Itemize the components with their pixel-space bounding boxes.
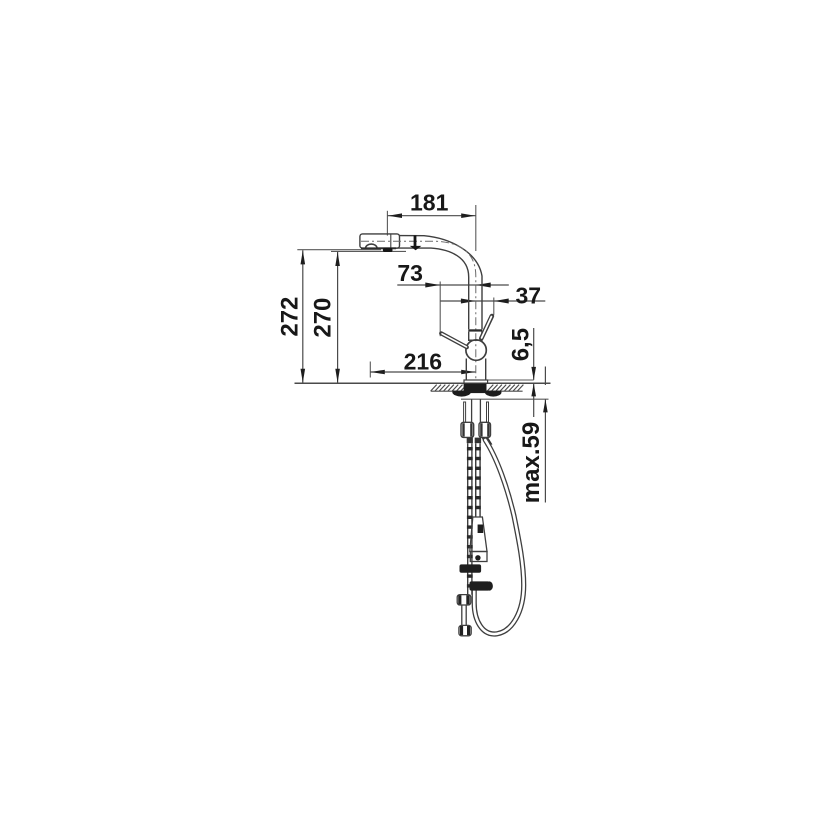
svg-text:37: 37	[516, 283, 542, 309]
svg-text:216: 216	[404, 349, 442, 375]
svg-text:max.59: max.59	[518, 422, 545, 503]
svg-text:73: 73	[397, 260, 423, 286]
svg-text:6,5: 6,5	[507, 328, 534, 361]
svg-text:181: 181	[410, 190, 449, 216]
svg-text:270: 270	[310, 298, 337, 338]
svg-text:272: 272	[276, 297, 303, 337]
